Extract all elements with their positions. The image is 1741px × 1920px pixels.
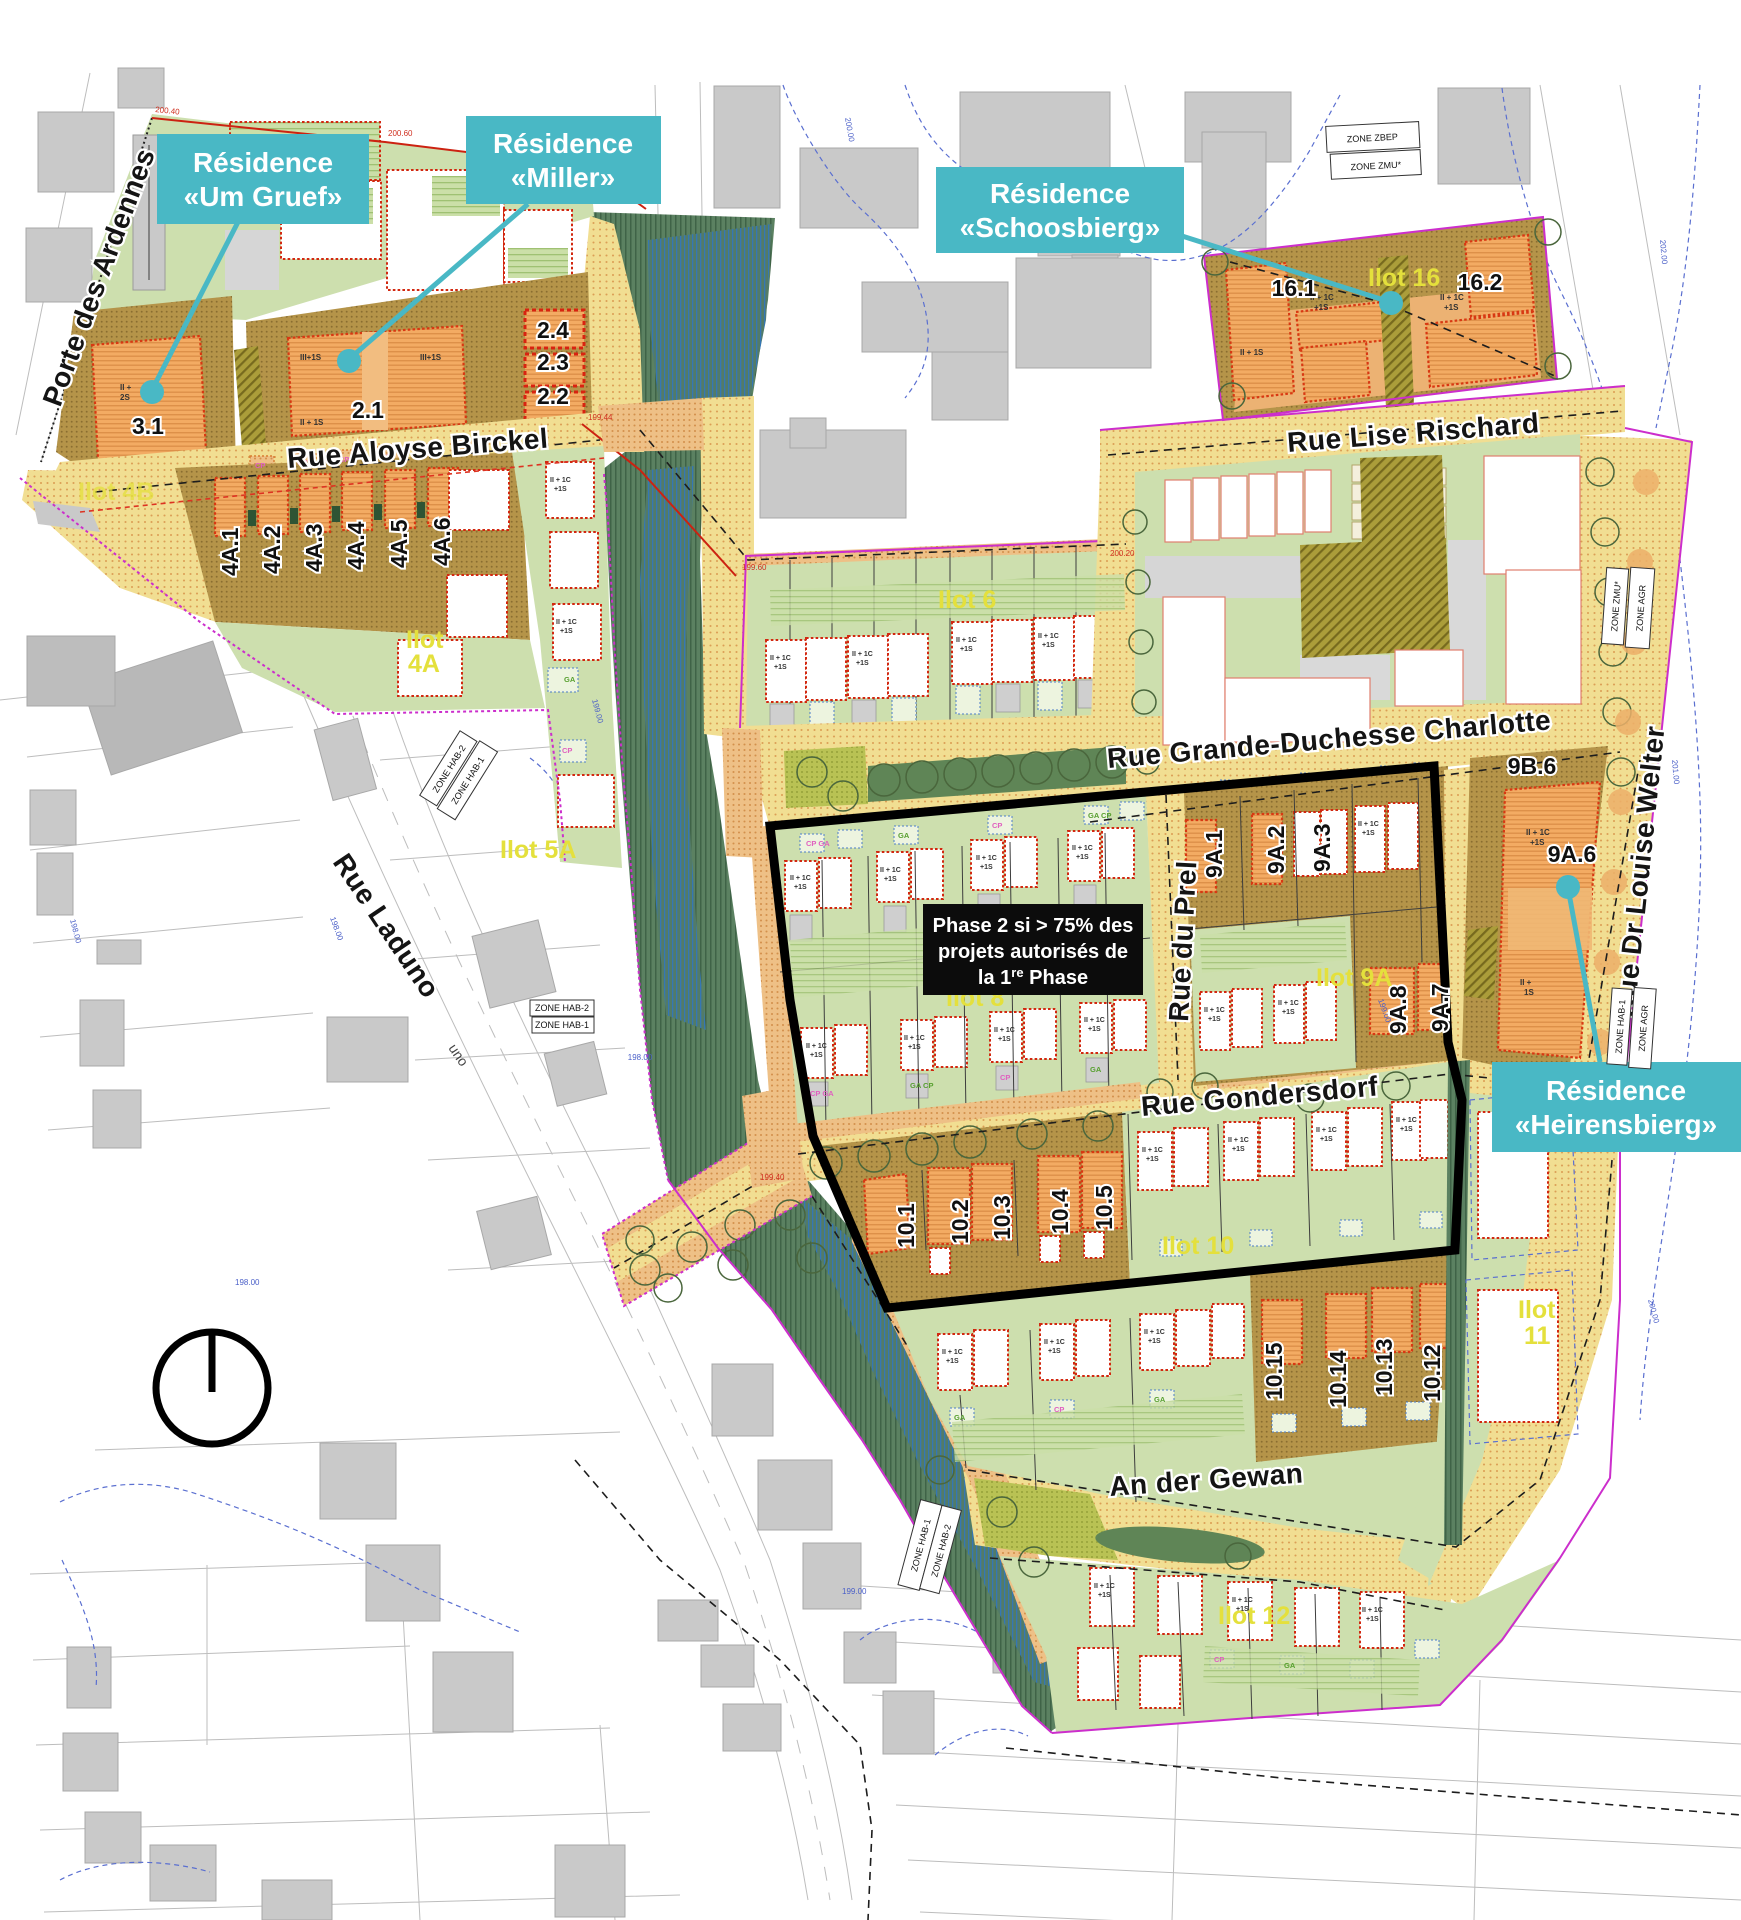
svg-text:CP GA: CP GA — [806, 839, 830, 848]
svg-text:«Schoosbierg»: «Schoosbierg» — [960, 212, 1161, 243]
svg-text:+1S: +1S — [1076, 854, 1089, 861]
svg-text:+1S: +1S — [1146, 1156, 1159, 1163]
svg-text:9A.8: 9A.8 — [1385, 985, 1411, 1034]
svg-text:2.3: 2.3 — [537, 349, 569, 375]
svg-text:+1S: +1S — [560, 628, 573, 635]
svg-text:Phase 2 si > 75% des: Phase 2 si > 75% des — [933, 915, 1134, 937]
svg-text:II + 1C: II + 1C — [1144, 1329, 1165, 1336]
svg-text:+1S: +1S — [998, 1036, 1011, 1043]
svg-text:+1S: +1S — [1366, 1616, 1379, 1623]
svg-text:9A.7: 9A.7 — [1427, 983, 1453, 1032]
svg-text:+1S: +1S — [554, 486, 567, 493]
svg-text:II + 1C: II + 1C — [880, 867, 901, 874]
svg-text:Résidence: Résidence — [1546, 1075, 1686, 1106]
svg-text:ZONE HAB-2: ZONE HAB-2 — [535, 1003, 589, 1013]
svg-text:+1S: +1S — [884, 876, 897, 883]
svg-text:4A: 4A — [408, 650, 440, 678]
svg-text:II + 1C: II + 1C — [1228, 1137, 1249, 1144]
svg-text:+1S: +1S — [856, 660, 869, 667]
svg-text:II +: II + — [120, 383, 132, 392]
svg-text:9A.2: 9A.2 — [1263, 825, 1289, 874]
svg-text:+1S: +1S — [1148, 1338, 1161, 1345]
svg-text:2.1: 2.1 — [352, 397, 384, 423]
svg-text:10.12: 10.12 — [1419, 1344, 1445, 1402]
svg-text:2S: 2S — [120, 393, 130, 402]
svg-text:10.14: 10.14 — [1325, 1350, 1351, 1408]
svg-text:+1S: +1S — [1232, 1146, 1245, 1153]
svg-text:II + 1C: II + 1C — [770, 655, 791, 662]
svg-text:+1S: +1S — [1362, 830, 1375, 837]
svg-text:II + 1C: II + 1C — [556, 619, 577, 626]
svg-text:II + 1C: II + 1C — [1038, 633, 1059, 640]
svg-text:GA: GA — [1284, 1661, 1296, 1670]
svg-text:GA CP: GA CP — [910, 1081, 933, 1090]
svg-text:II + 1C: II + 1C — [1358, 821, 1379, 828]
svg-text:III+1S: III+1S — [420, 353, 442, 362]
svg-text:+1S: +1S — [1088, 1026, 1101, 1033]
svg-text:GA: GA — [954, 1413, 966, 1422]
svg-text:II + 1S: II + 1S — [300, 418, 324, 427]
svg-text:+1S: +1S — [908, 1044, 921, 1051]
svg-text:Résidence: Résidence — [493, 128, 633, 159]
svg-text:II + 1C: II + 1C — [1278, 1000, 1299, 1007]
svg-text:II + 1C: II + 1C — [976, 855, 997, 862]
svg-text:II + 1C: II + 1C — [904, 1035, 925, 1042]
svg-text:CP: CP — [992, 821, 1002, 830]
svg-text:II + 1C: II + 1C — [852, 651, 873, 658]
svg-text:II + 1C: II + 1C — [1142, 1147, 1163, 1154]
svg-text:+1S: +1S — [1320, 1136, 1333, 1143]
svg-text:+1S: +1S — [1208, 1016, 1221, 1023]
svg-text:III+1S: III+1S — [300, 353, 322, 362]
svg-text:4A.1: 4A.1 — [217, 527, 243, 576]
svg-text:198.00: 198.00 — [628, 1053, 653, 1062]
svg-text:CP GA: CP GA — [810, 1089, 834, 1098]
svg-text:4A.2: 4A.2 — [259, 525, 285, 574]
svg-text:+1S: +1S — [1098, 1592, 1111, 1599]
svg-text:+1S: +1S — [1048, 1348, 1061, 1355]
svg-text:+1S: +1S — [774, 664, 787, 671]
svg-text:+1S: +1S — [1282, 1009, 1295, 1016]
svg-text:GA: GA — [1154, 1395, 1166, 1404]
svg-text:II + 1C: II + 1C — [1084, 1017, 1105, 1024]
svg-text:II + 1C: II + 1C — [1316, 1127, 1337, 1134]
svg-text:«Heirensbierg»: «Heirensbierg» — [1515, 1109, 1717, 1140]
svg-text:II + 1C: II + 1C — [1044, 1339, 1065, 1346]
svg-text:II + 1C: II + 1C — [956, 637, 977, 644]
svg-text:CP: CP — [255, 461, 265, 470]
svg-text:+1S: +1S — [1400, 1126, 1413, 1133]
svg-text:+1S: +1S — [980, 864, 993, 871]
svg-text:9A.1: 9A.1 — [1201, 829, 1227, 878]
svg-text:200.60: 200.60 — [388, 129, 413, 138]
svg-text:Ilot: Ilot — [1518, 1296, 1556, 1324]
svg-text:CP: CP — [1000, 1073, 1010, 1082]
svg-text:Ilot 10: Ilot 10 — [1162, 1232, 1234, 1260]
svg-text:CP: CP — [1214, 1655, 1224, 1664]
svg-text:9A.6: 9A.6 — [1548, 841, 1597, 867]
svg-text:projets autorisés de: projets autorisés de — [938, 941, 1128, 963]
svg-text:199.40: 199.40 — [760, 1173, 785, 1182]
svg-text:«Miller»: «Miller» — [511, 162, 615, 193]
svg-text:GA: GA — [564, 675, 576, 684]
svg-text:Ilot 4B: Ilot 4B — [78, 478, 154, 506]
svg-text:4A.5: 4A.5 — [386, 519, 412, 568]
svg-text:II + 1C: II + 1C — [1396, 1117, 1417, 1124]
svg-text:II + 1C: II + 1C — [550, 477, 571, 484]
svg-text:Ilot 6: Ilot 6 — [938, 586, 996, 614]
svg-text:+1S: +1S — [794, 884, 807, 891]
svg-text:+1S: +1S — [946, 1358, 959, 1365]
svg-text:II + 1C: II + 1C — [1072, 845, 1093, 852]
svg-text:10.3: 10.3 — [989, 1195, 1015, 1240]
svg-text:«Um Gruef»: «Um Gruef» — [184, 181, 343, 212]
svg-text:199.44: 199.44 — [588, 413, 613, 422]
svg-text:II + 1C: II + 1C — [1362, 1607, 1383, 1614]
svg-text:+1S: +1S — [960, 646, 973, 653]
svg-text:Ilot 9A: Ilot 9A — [1316, 964, 1392, 992]
svg-text:+1S: +1S — [1530, 838, 1545, 847]
svg-text:1S: 1S — [1524, 988, 1534, 997]
svg-text:Résidence: Résidence — [193, 147, 333, 178]
svg-text:+1S: +1S — [810, 1052, 823, 1059]
svg-text:II + 1C: II + 1C — [1204, 1007, 1225, 1014]
svg-text:10.1: 10.1 — [893, 1203, 919, 1248]
svg-text:10.2: 10.2 — [947, 1199, 973, 1244]
svg-text:3.1: 3.1 — [132, 413, 164, 439]
svg-text:16.2: 16.2 — [1458, 269, 1503, 295]
svg-text:10.13: 10.13 — [1371, 1338, 1397, 1396]
svg-text:+1S: +1S — [1444, 303, 1459, 312]
svg-text:9A.3: 9A.3 — [1309, 823, 1335, 872]
svg-text:II + 1C: II + 1C — [1526, 828, 1550, 837]
svg-text:4A.6: 4A.6 — [429, 517, 455, 566]
svg-text:4A.4: 4A.4 — [343, 521, 369, 570]
svg-text:Ilot 16: Ilot 16 — [1368, 264, 1440, 292]
svg-text:+1S: +1S — [1314, 303, 1329, 312]
svg-text:CP: CP — [562, 746, 572, 755]
svg-text:II + 1S: II + 1S — [1240, 348, 1264, 357]
svg-text:GA: GA — [898, 831, 910, 840]
svg-text:II + 1C: II + 1C — [942, 1349, 963, 1356]
svg-text:GA CP: GA CP — [1088, 811, 1111, 820]
svg-text:199.60: 199.60 — [742, 563, 767, 572]
svg-text:2.4: 2.4 — [537, 317, 569, 343]
svg-text:GA: GA — [1090, 1065, 1102, 1074]
svg-text:200.20: 200.20 — [1110, 549, 1135, 558]
svg-text:4A.3: 4A.3 — [301, 523, 327, 572]
svg-text:la 1re Phase: la 1re Phase — [978, 965, 1088, 989]
svg-text:+1S: +1S — [1042, 642, 1055, 649]
svg-text:11: 11 — [1524, 1322, 1551, 1350]
svg-text:198.00: 198.00 — [235, 1278, 260, 1287]
svg-text:10.5: 10.5 — [1091, 1185, 1117, 1230]
svg-text:II + 1C: II + 1C — [806, 1043, 827, 1050]
svg-text:II + 1C: II + 1C — [1094, 1583, 1115, 1590]
svg-text:CP: CP — [1054, 1405, 1064, 1414]
svg-text:Ilot 5A: Ilot 5A — [500, 836, 576, 864]
svg-text:Ilot 12: Ilot 12 — [1218, 1602, 1290, 1630]
svg-text:II + 1C: II + 1C — [994, 1027, 1015, 1034]
svg-text:9B.6: 9B.6 — [1508, 753, 1557, 779]
svg-text:II +: II + — [1520, 978, 1532, 987]
svg-text:10.15: 10.15 — [1261, 1342, 1287, 1400]
svg-text:Résidence: Résidence — [990, 178, 1130, 209]
svg-text:ZONE HAB-1: ZONE HAB-1 — [535, 1020, 589, 1030]
svg-text:199.00: 199.00 — [842, 1587, 867, 1596]
svg-text:2.2: 2.2 — [537, 383, 569, 409]
svg-text:II + 1C: II + 1C — [790, 875, 811, 882]
svg-text:10.4: 10.4 — [1047, 1189, 1073, 1234]
